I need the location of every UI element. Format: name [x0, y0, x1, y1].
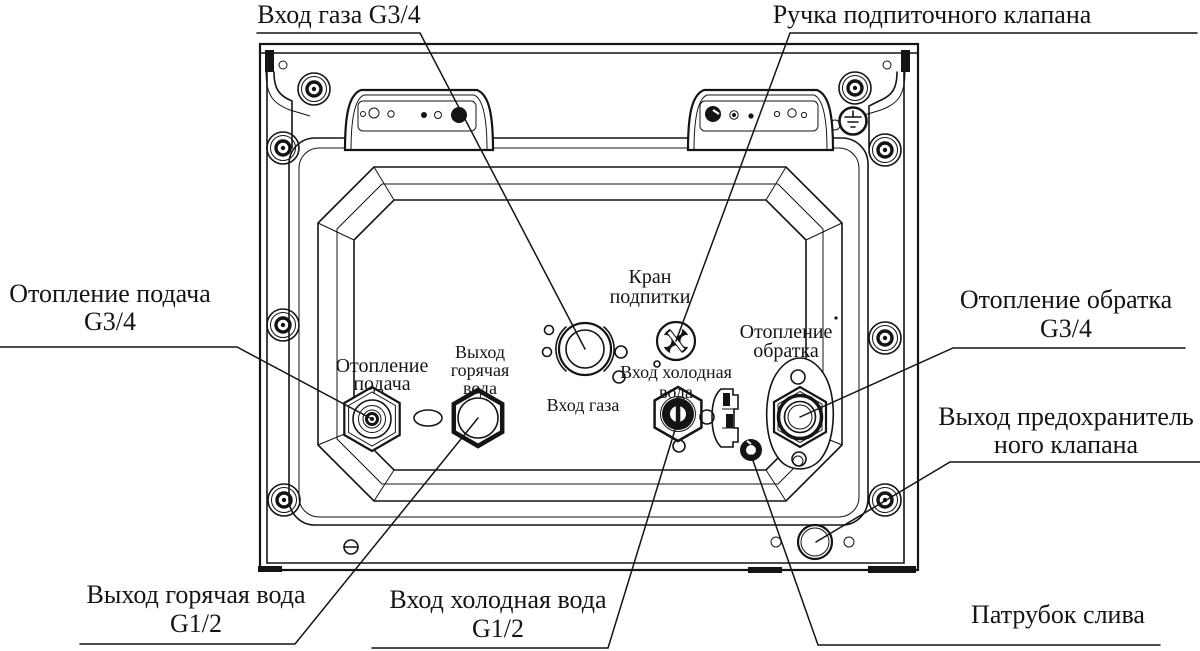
frame-hole — [279, 61, 287, 69]
leader-heating-supply — [0, 347, 372, 419]
callout-heating-return-label: Отопление обратка — [960, 285, 1173, 314]
callout-heating-supply-size: G3/4 — [84, 307, 136, 336]
callout-heating-supply: Отопление подача G3/4 — [0, 279, 372, 419]
top-left-notch — [265, 50, 274, 72]
bracket-hole — [421, 112, 427, 118]
frame-hole — [883, 61, 891, 69]
leader-gas-inlet — [257, 33, 585, 349]
part-label-hot-water-line3: вода — [463, 378, 497, 398]
foot — [868, 566, 916, 573]
part-label-gas-inlet: Вход газа — [547, 395, 620, 415]
callout-cold-water-size: G1/2 — [472, 614, 524, 643]
oval-slot — [414, 410, 442, 426]
callout-cold-water-inlet: Вход холодная вода G1/2 — [372, 420, 678, 648]
mounting-bracket-left — [345, 90, 493, 150]
part-label-makeup-valve-line1: Кран — [629, 266, 672, 288]
callout-hot-water-size: G1/2 — [170, 609, 222, 638]
bracket-hole — [748, 113, 753, 118]
boiler-bottom-view-diagram: Кран подпитки Отопление обратка Вход хол… — [0, 0, 1200, 651]
screw — [869, 134, 901, 166]
callout-safety-valve-line1: Выход предохранитель — [938, 402, 1194, 431]
part-label-makeup-valve-line2: подпитки — [610, 286, 691, 308]
part-label-cold-water-line1: Вход холодная — [620, 362, 732, 382]
top-right-notch — [901, 50, 910, 72]
foot — [258, 566, 282, 572]
retaining-clip — [712, 389, 738, 447]
screw — [869, 322, 901, 354]
part-label-hot-water-line1: Выход — [455, 342, 505, 362]
callout-cold-water-label: Вход холодная вода — [389, 585, 607, 614]
callout-makeup-valve-handle-label: Ручка подпиточного клапана — [773, 0, 1092, 29]
callout-heating-supply-label: Отопление подача — [9, 279, 211, 308]
leader-safety-valve — [816, 462, 1200, 542]
callout-drain-label: Патрубок слива — [971, 600, 1145, 629]
screw — [267, 309, 299, 341]
callout-heating-return-size: G3/4 — [1040, 314, 1092, 343]
drain-valve — [740, 439, 762, 461]
callout-heating-return: Отопление обратка G3/4 — [800, 285, 1185, 417]
foot — [748, 567, 782, 573]
screw — [298, 73, 330, 105]
part-label-hot-water-line2: горячая — [451, 360, 510, 380]
part-label-cold-water-line2: вода — [659, 382, 693, 402]
callout-safety-valve-outlet: Выход предохранитель ного клапана — [816, 402, 1200, 542]
callout-hot-water-label: Выход горячая вода — [87, 580, 306, 609]
slotted-screw — [344, 540, 358, 554]
screw — [839, 72, 871, 104]
ground-terminal-icon — [840, 108, 867, 135]
bracket-hole — [451, 107, 467, 123]
mounting-bracket-right — [688, 90, 833, 150]
screw — [268, 484, 300, 516]
part-label-heating-supply-line2: подача — [353, 373, 410, 395]
callout-gas-inlet-label: Вход газа G3/4 — [257, 0, 421, 29]
safety-valve-outlet — [798, 525, 832, 559]
heating-return-fitting — [767, 358, 834, 469]
part-label-heating-return-line2: обратка — [753, 340, 819, 362]
callout-safety-valve-line2: ного клапана — [994, 430, 1139, 459]
